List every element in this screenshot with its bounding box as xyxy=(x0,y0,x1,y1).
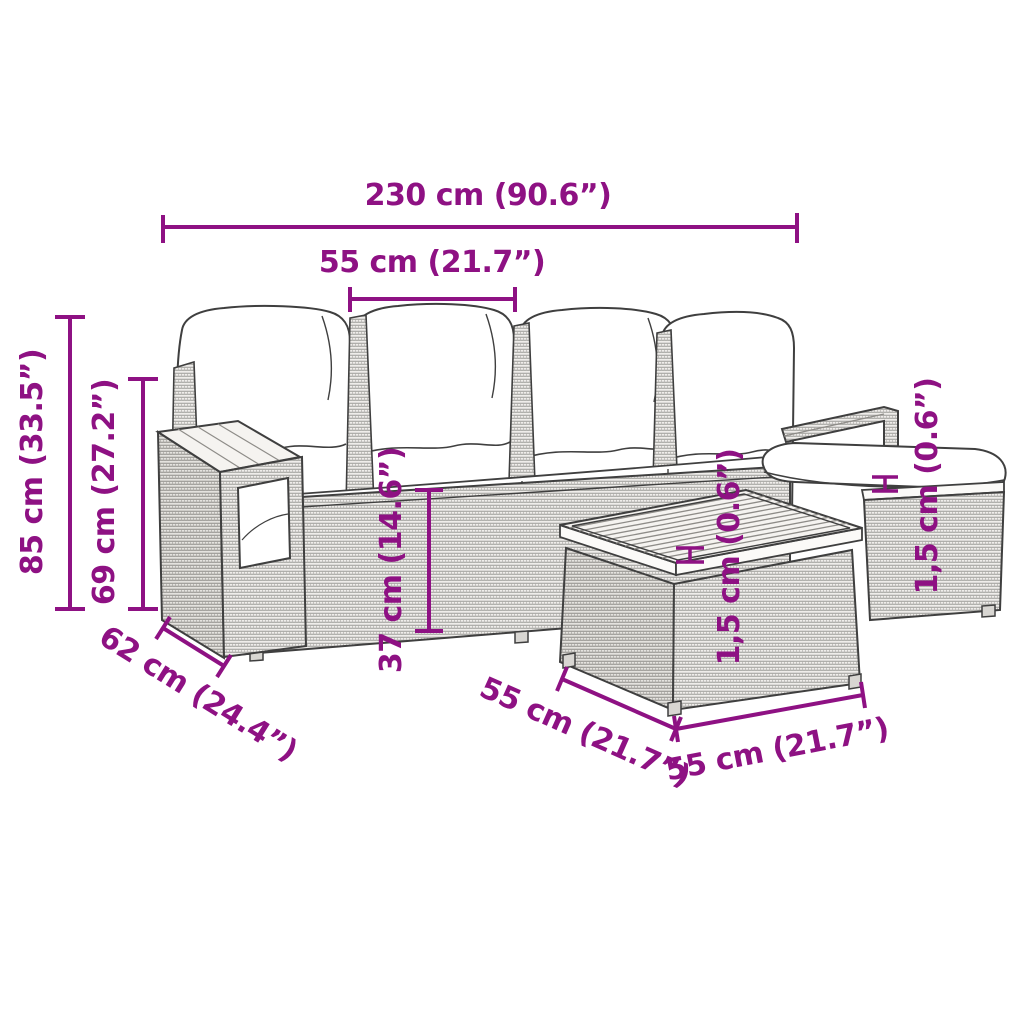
table-foot xyxy=(563,653,575,668)
dim-table-thickness-label: 1,5 cm (0.6”) xyxy=(712,449,747,666)
table-foot xyxy=(668,701,681,716)
dim-armrest-height-label: 69 cm (27.2”) xyxy=(87,379,122,605)
dim-total-width-label: 230 cm (90.6”) xyxy=(365,178,612,213)
dimension-diagram-canvas: 230 cm (90.6”) 55 cm (21.7”) 85 cm (33.5… xyxy=(0,0,1024,1024)
dim-total-height-line xyxy=(55,317,85,609)
ottoman-foot xyxy=(982,605,995,617)
garden-sofa-set-diagram: 230 cm (90.6”) 55 cm (21.7”) 85 cm (33.5… xyxy=(0,0,1024,1024)
dim-total-height-label: 85 cm (33.5”) xyxy=(15,349,50,575)
sofa-set-illustration xyxy=(158,304,1006,716)
left-armrest xyxy=(158,421,306,658)
dim-table-width-label: 55 cm (21.7”) xyxy=(663,711,892,789)
dim-seat-width-label: 55 cm (21.7”) xyxy=(319,245,545,280)
armrest-window xyxy=(238,478,290,568)
sofa-foot xyxy=(515,631,528,643)
dim-ottoman-thickness-label: 1,5 cm (0.6”) xyxy=(910,378,945,595)
dim-seat-height-label: 37 cm (14.6”) xyxy=(374,447,409,673)
dim-total-width-line xyxy=(163,213,797,243)
dim-armrest-height-line xyxy=(128,379,158,609)
table-foot xyxy=(849,674,861,689)
coffee-table xyxy=(560,490,862,716)
